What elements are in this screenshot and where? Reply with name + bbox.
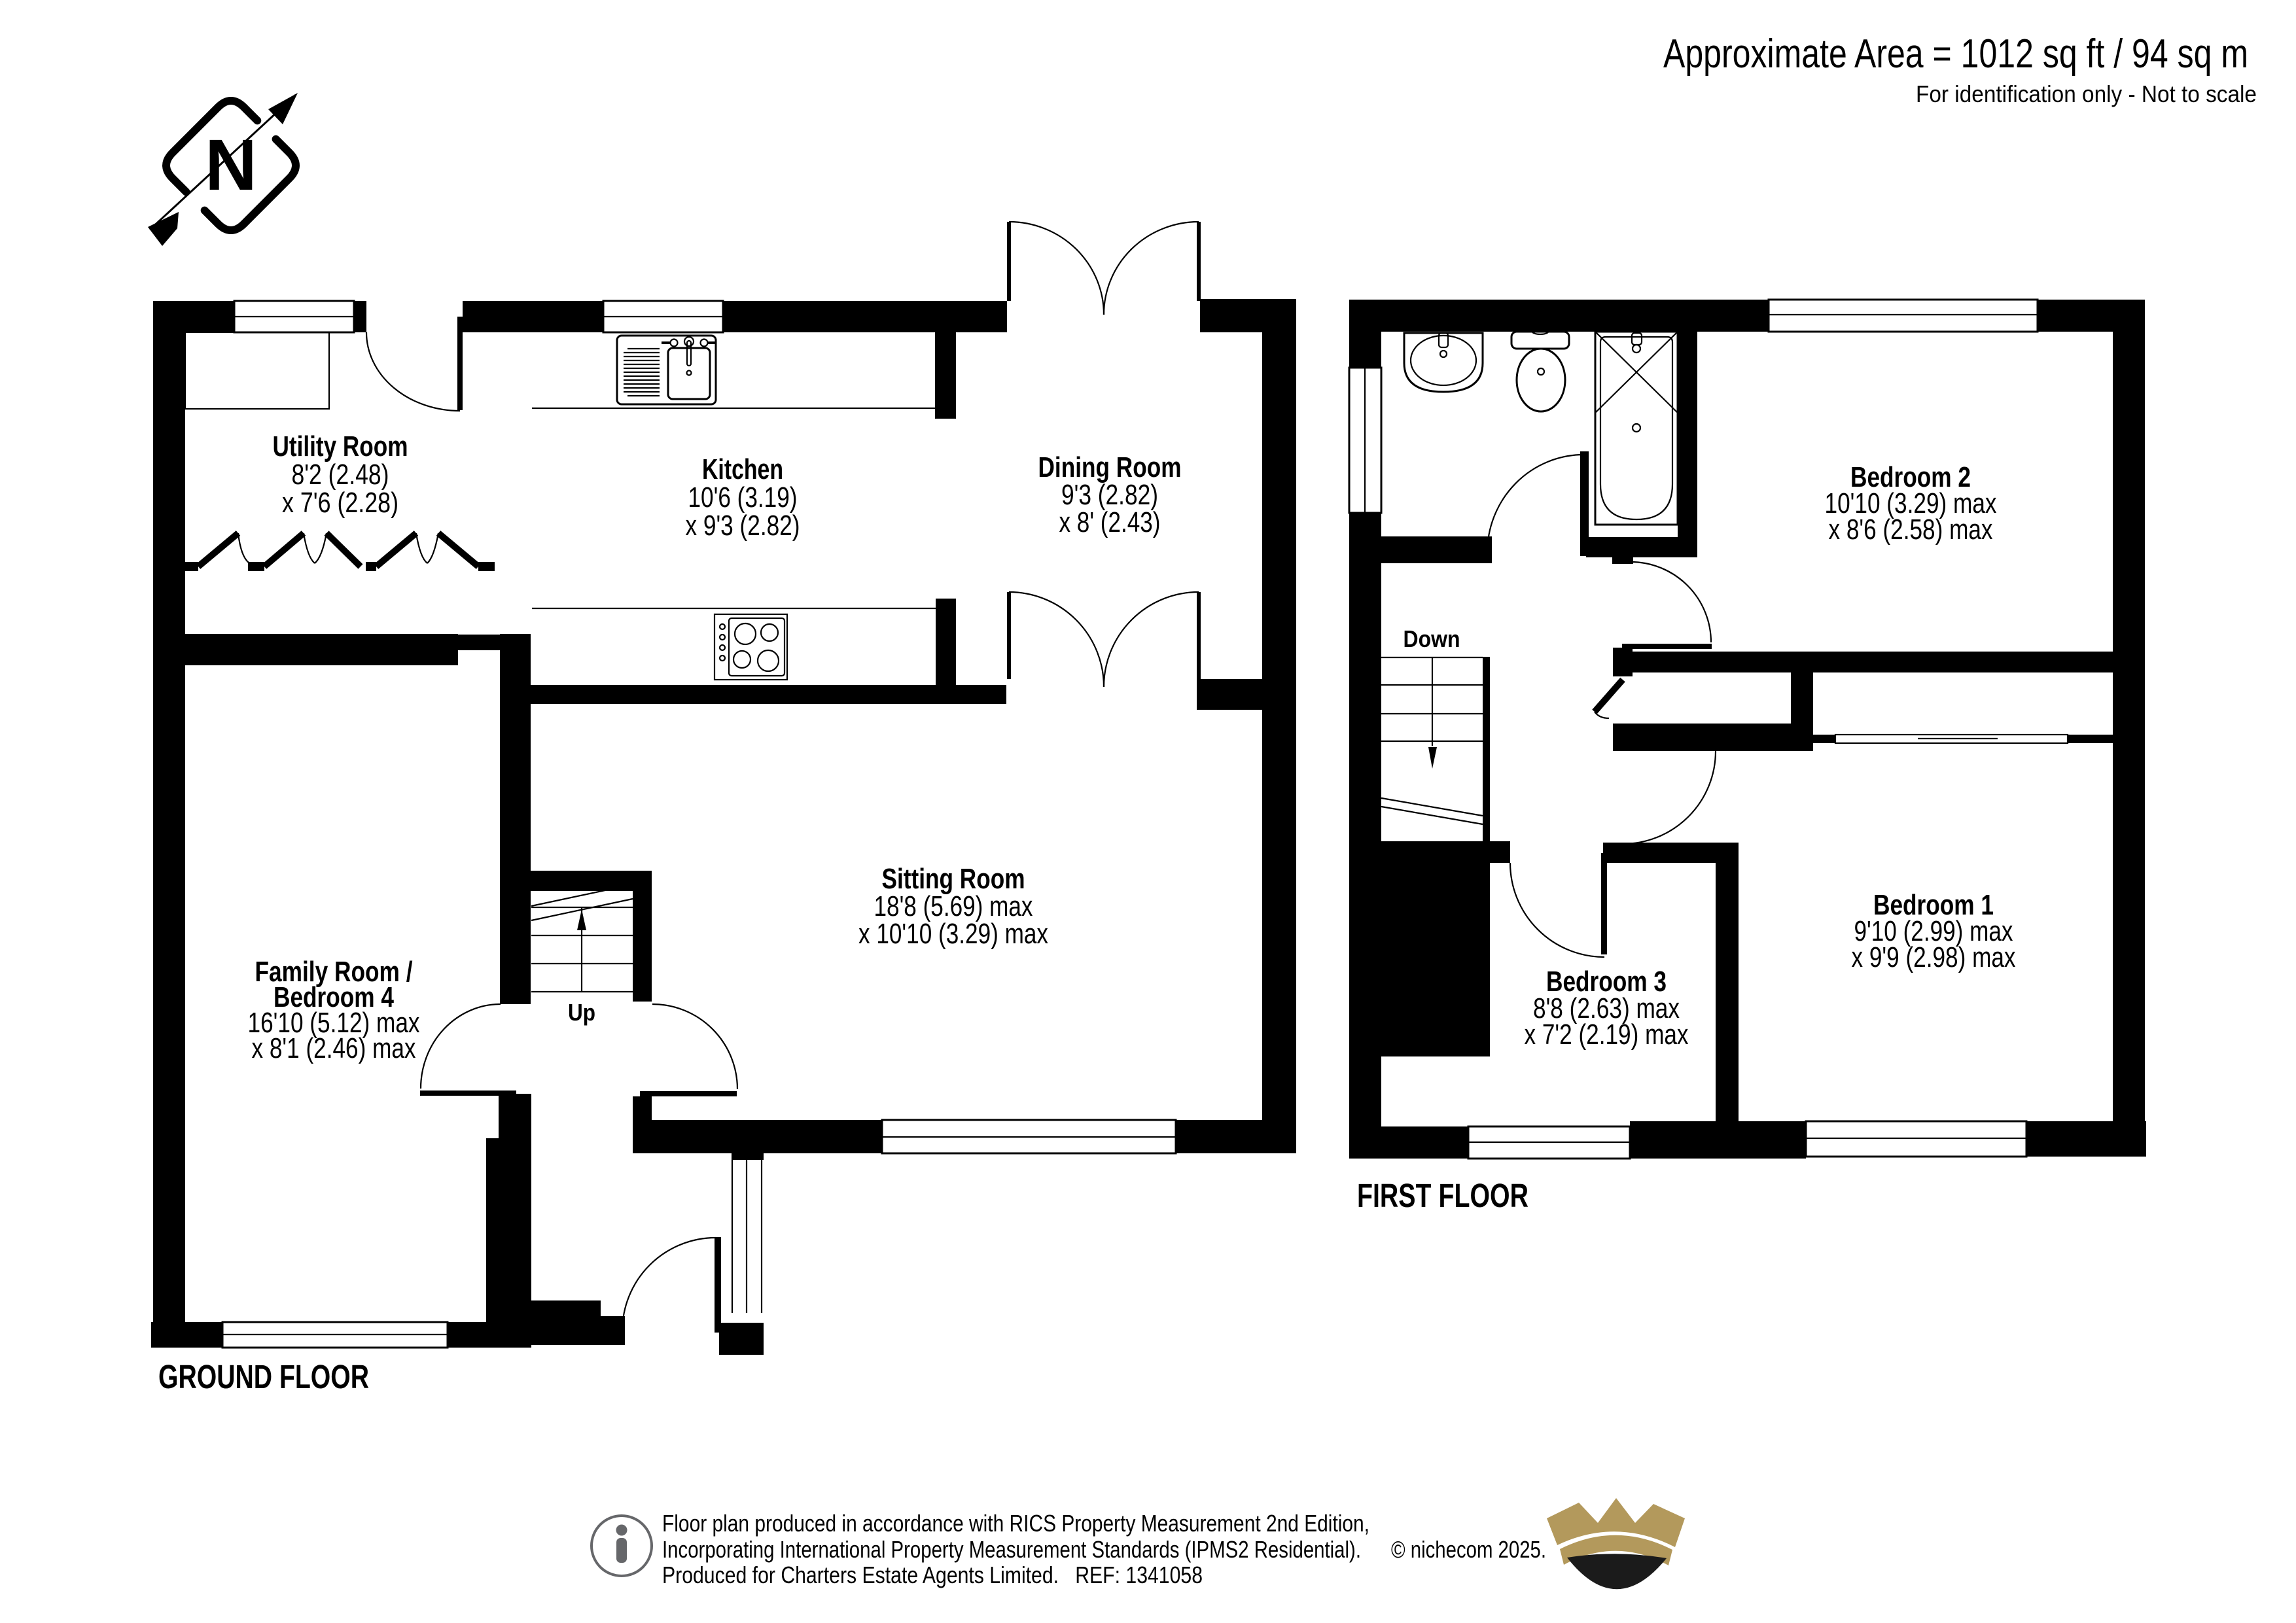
svg-text:x 8'6 (2.58) max: x 8'6 (2.58) max <box>1829 514 1993 546</box>
svg-text:Up: Up <box>568 999 595 1026</box>
svg-text:Produced for Charters Estate A: Produced for Charters Estate Agents Limi… <box>662 1562 1203 1588</box>
svg-text:FIRST FLOOR: FIRST FLOOR <box>1357 1177 1528 1214</box>
svg-text:x 10'10 (3.29) max: x 10'10 (3.29) max <box>858 918 1048 950</box>
svg-text:© nichecom 2025.: © nichecom 2025. <box>1391 1536 1546 1563</box>
svg-text:10'6 (3.19): 10'6 (3.19) <box>688 481 798 514</box>
svg-text:For identification only - Not: For identification only - Not to scale <box>1916 80 2257 107</box>
svg-text:x 9'9 (2.98) max: x 9'9 (2.98) max <box>1852 941 2016 973</box>
svg-text:Approximate Area = 1012 sq ft: Approximate Area = 1012 sq ft / 94 sq m <box>1663 31 2248 77</box>
svg-text:x 8' (2.43): x 8' (2.43) <box>1059 506 1161 538</box>
svg-text:Incorporating International Pr: Incorporating International Property Mea… <box>662 1536 1361 1563</box>
svg-text:GROUND FLOOR: GROUND FLOOR <box>158 1358 369 1395</box>
svg-text:Down: Down <box>1404 625 1460 652</box>
svg-text:8'2 (2.48): 8'2 (2.48) <box>292 459 389 491</box>
svg-text:Kitchen: Kitchen <box>702 453 783 485</box>
svg-text:x 7'2 (2.19) max: x 7'2 (2.19) max <box>1525 1019 1689 1051</box>
svg-text:Floor plan produced in accorda: Floor plan produced in accordance with R… <box>662 1510 1369 1537</box>
svg-text:x 7'6 (2.28): x 7'6 (2.28) <box>282 487 398 519</box>
svg-text:Utility Room: Utility Room <box>273 430 408 462</box>
svg-text:N: N <box>205 125 256 205</box>
svg-text:x 8'1 (2.46) max: x 8'1 (2.46) max <box>252 1032 416 1064</box>
svg-text:x 9'3 (2.82): x 9'3 (2.82) <box>686 510 800 542</box>
